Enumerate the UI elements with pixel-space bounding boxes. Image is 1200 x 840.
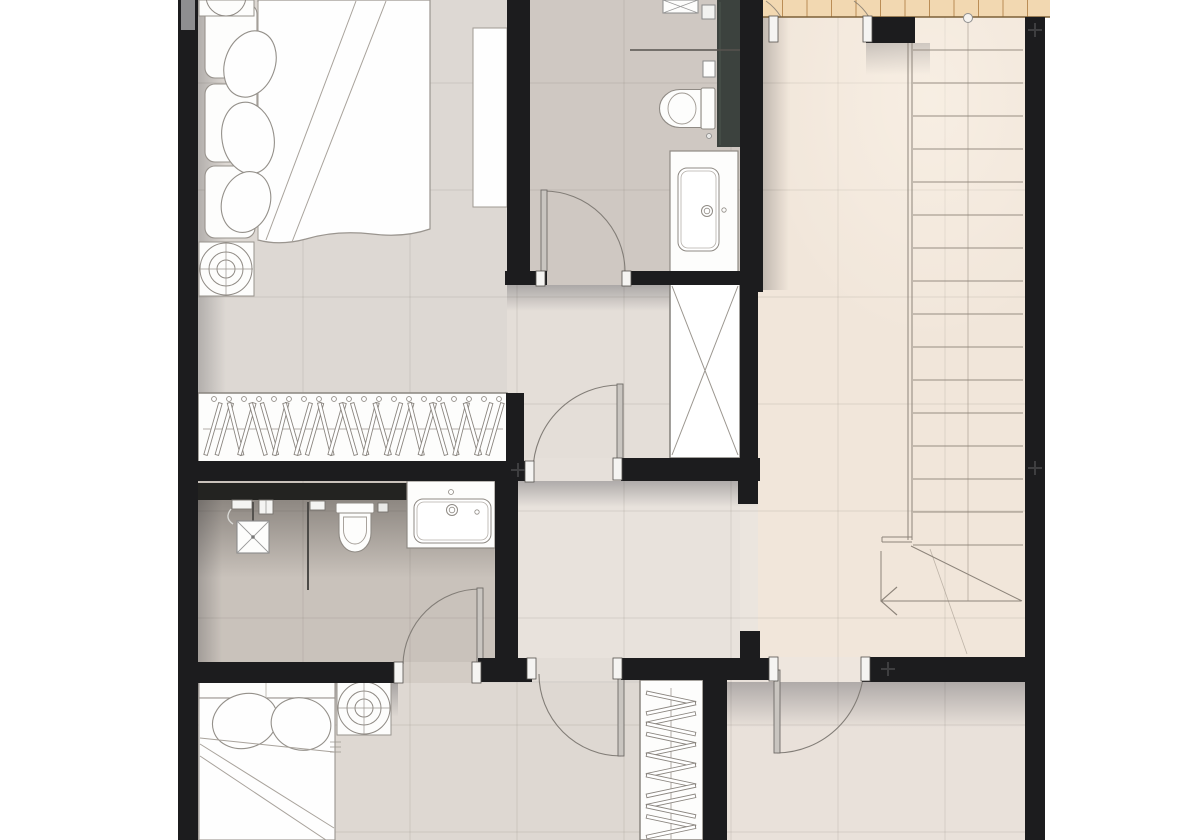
bed-1-duvet — [258, 0, 430, 243]
wall-bathroom-2-east — [495, 480, 518, 665]
accessory-bathroom-2 — [378, 503, 388, 512]
wall-south-1 — [178, 662, 395, 683]
flush-plate-1 — [703, 61, 715, 77]
shadow-left-wall-bathroom-2 — [198, 483, 222, 663]
wall-mid-west — [178, 461, 526, 481]
wall-closet-east — [703, 680, 727, 840]
floor-plan — [0, 0, 1200, 840]
door-jamb-room-3-east — [861, 657, 870, 681]
wall-south-2 — [478, 658, 532, 682]
vanity-2-basin — [414, 499, 491, 543]
wall-bathroom-1-east — [740, 0, 763, 292]
wall-passage-stub-upper — [738, 481, 758, 504]
toilet-2-tank — [336, 503, 374, 513]
counter-bathroom-2 — [198, 483, 407, 500]
door-jamb-bathroom-2-east — [472, 662, 481, 683]
wall-bathroom-1-south-east — [625, 271, 758, 285]
door-jamb-bathroom-1-west — [536, 271, 545, 286]
toilet-1-tank — [701, 88, 715, 129]
floor-doorway-bathroom-2 — [395, 662, 480, 683]
shadow-room-3 — [727, 682, 1025, 728]
door-jamb-deck-left — [769, 16, 778, 42]
wall-shaft-east — [740, 285, 758, 481]
wall-south-3 — [621, 658, 770, 680]
deck-marker — [964, 14, 973, 23]
floor-plan-layers — [178, 0, 1050, 840]
toilet-1-bowl — [660, 90, 702, 128]
door-jamb-room-3-west — [769, 657, 778, 681]
shower-accessory-1 — [702, 5, 715, 19]
floor-doorway-bathroom-1 — [547, 271, 625, 285]
door-jamb-bathroom-2-west — [394, 662, 403, 683]
door-leaf-bathroom-1 — [541, 190, 547, 271]
wall-mid-east — [621, 458, 760, 481]
door-leaf-room-3 — [774, 670, 780, 753]
shower-mixer-2 — [232, 500, 252, 509]
floor-doorway-hall — [526, 458, 621, 481]
floor-plan-svg — [0, 0, 1200, 840]
door-jamb-hall-east — [613, 458, 622, 480]
wall-exterior-right — [1025, 17, 1045, 840]
wall-stair-pillar — [866, 17, 915, 43]
toilet-1-valve — [707, 134, 712, 139]
floor-doorway-room-3 — [770, 657, 862, 682]
shadow-hall-lower — [518, 481, 758, 507]
door-jamb-bathroom-1-east — [622, 271, 631, 286]
door-leaf-bathroom-2 — [477, 588, 483, 664]
floor-passage-gap — [740, 502, 758, 632]
wall-wardrobe-stub — [506, 393, 524, 463]
floor-doorway-bedroom-2 — [532, 658, 621, 681]
bench-bedroom-1 — [473, 28, 507, 207]
shower-drain-2 — [251, 535, 255, 539]
wall-bedroom-1-east — [507, 0, 530, 285]
flush-plate-2 — [310, 501, 325, 510]
deck-balcony — [752, 0, 1050, 17]
door-jamb-hall-west — [525, 461, 534, 482]
vanity-1-basin — [678, 168, 719, 251]
door-leaf-bedroom-2 — [618, 676, 624, 756]
door-jamb-bedroom-2-west — [527, 658, 536, 679]
wall-passage-stub-lower — [740, 631, 760, 660]
wall-exterior-left — [178, 0, 198, 840]
wall-window-inset — [181, 0, 195, 30]
door-jamb-deck-right — [863, 16, 872, 42]
door-jamb-bedroom-2-east — [613, 658, 622, 679]
shadow-bathroom-wall-stair-hall — [763, 0, 789, 290]
